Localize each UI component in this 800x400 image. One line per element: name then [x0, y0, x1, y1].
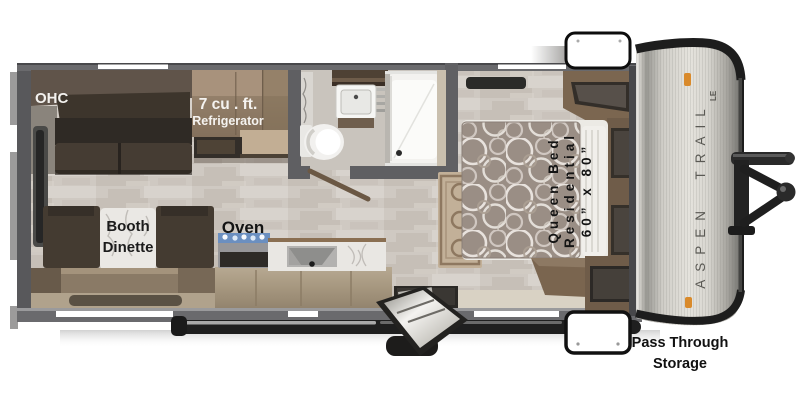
svg-text:Residential: Residential	[562, 132, 577, 248]
svg-text:Refrigerator: Refrigerator	[192, 114, 264, 128]
svg-text:Dinette: Dinette	[103, 239, 154, 256]
svg-text:Booth: Booth	[106, 218, 149, 235]
svg-text:Storage: Storage	[653, 356, 707, 372]
svg-text:OHC: OHC	[35, 90, 69, 107]
svg-text:60” x 80”: 60” x 80”	[579, 143, 594, 238]
svg-text:7 cu . ft.: 7 cu . ft.	[199, 96, 258, 113]
svg-text:ASPEN TRAIL: ASPEN TRAIL	[693, 101, 708, 289]
svg-text:Queen Bed: Queen Bed	[546, 136, 561, 243]
svg-text:Pass Through: Pass Through	[632, 335, 729, 351]
svg-text:LE: LE	[709, 90, 718, 101]
